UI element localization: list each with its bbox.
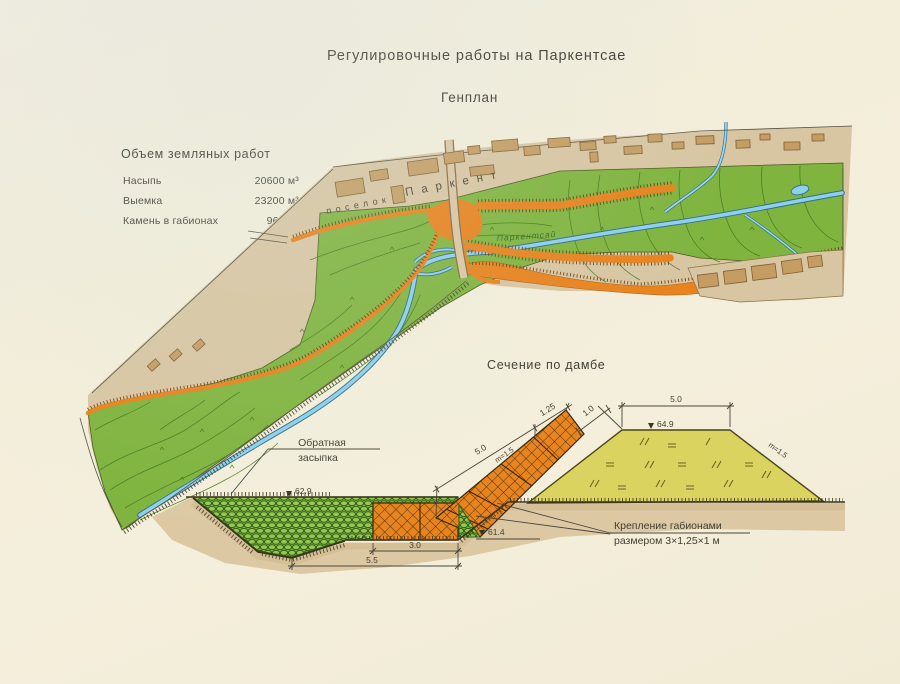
backfill-label-line1: Обратная	[298, 437, 346, 449]
dim-slope: 5.0	[473, 442, 489, 457]
elev-crest: 64.9	[657, 419, 674, 429]
right-slope-label: m=1.5	[767, 440, 789, 460]
drawing-sheet: Регулировочные работы на Паркентсае Генп…	[0, 0, 900, 684]
backfill-label-line2: засыпка	[298, 452, 338, 464]
elev-ground: 61.4	[488, 527, 505, 537]
dim-gabion-thickness: 1.0	[580, 403, 596, 418]
dim-excavation: 5.5	[366, 555, 378, 565]
dim-crest: 5.0	[670, 394, 682, 404]
dim-mattress: 3.0	[409, 540, 421, 550]
elev-backfill: 62.9	[295, 486, 312, 496]
gabion-note-line1: Крепление габионами	[614, 520, 722, 532]
plan-drawing: поселок Паркент Паркентсай m=1.5	[0, 0, 900, 684]
gabion-note-line2: размером 3×1,25×1 м	[614, 535, 720, 547]
